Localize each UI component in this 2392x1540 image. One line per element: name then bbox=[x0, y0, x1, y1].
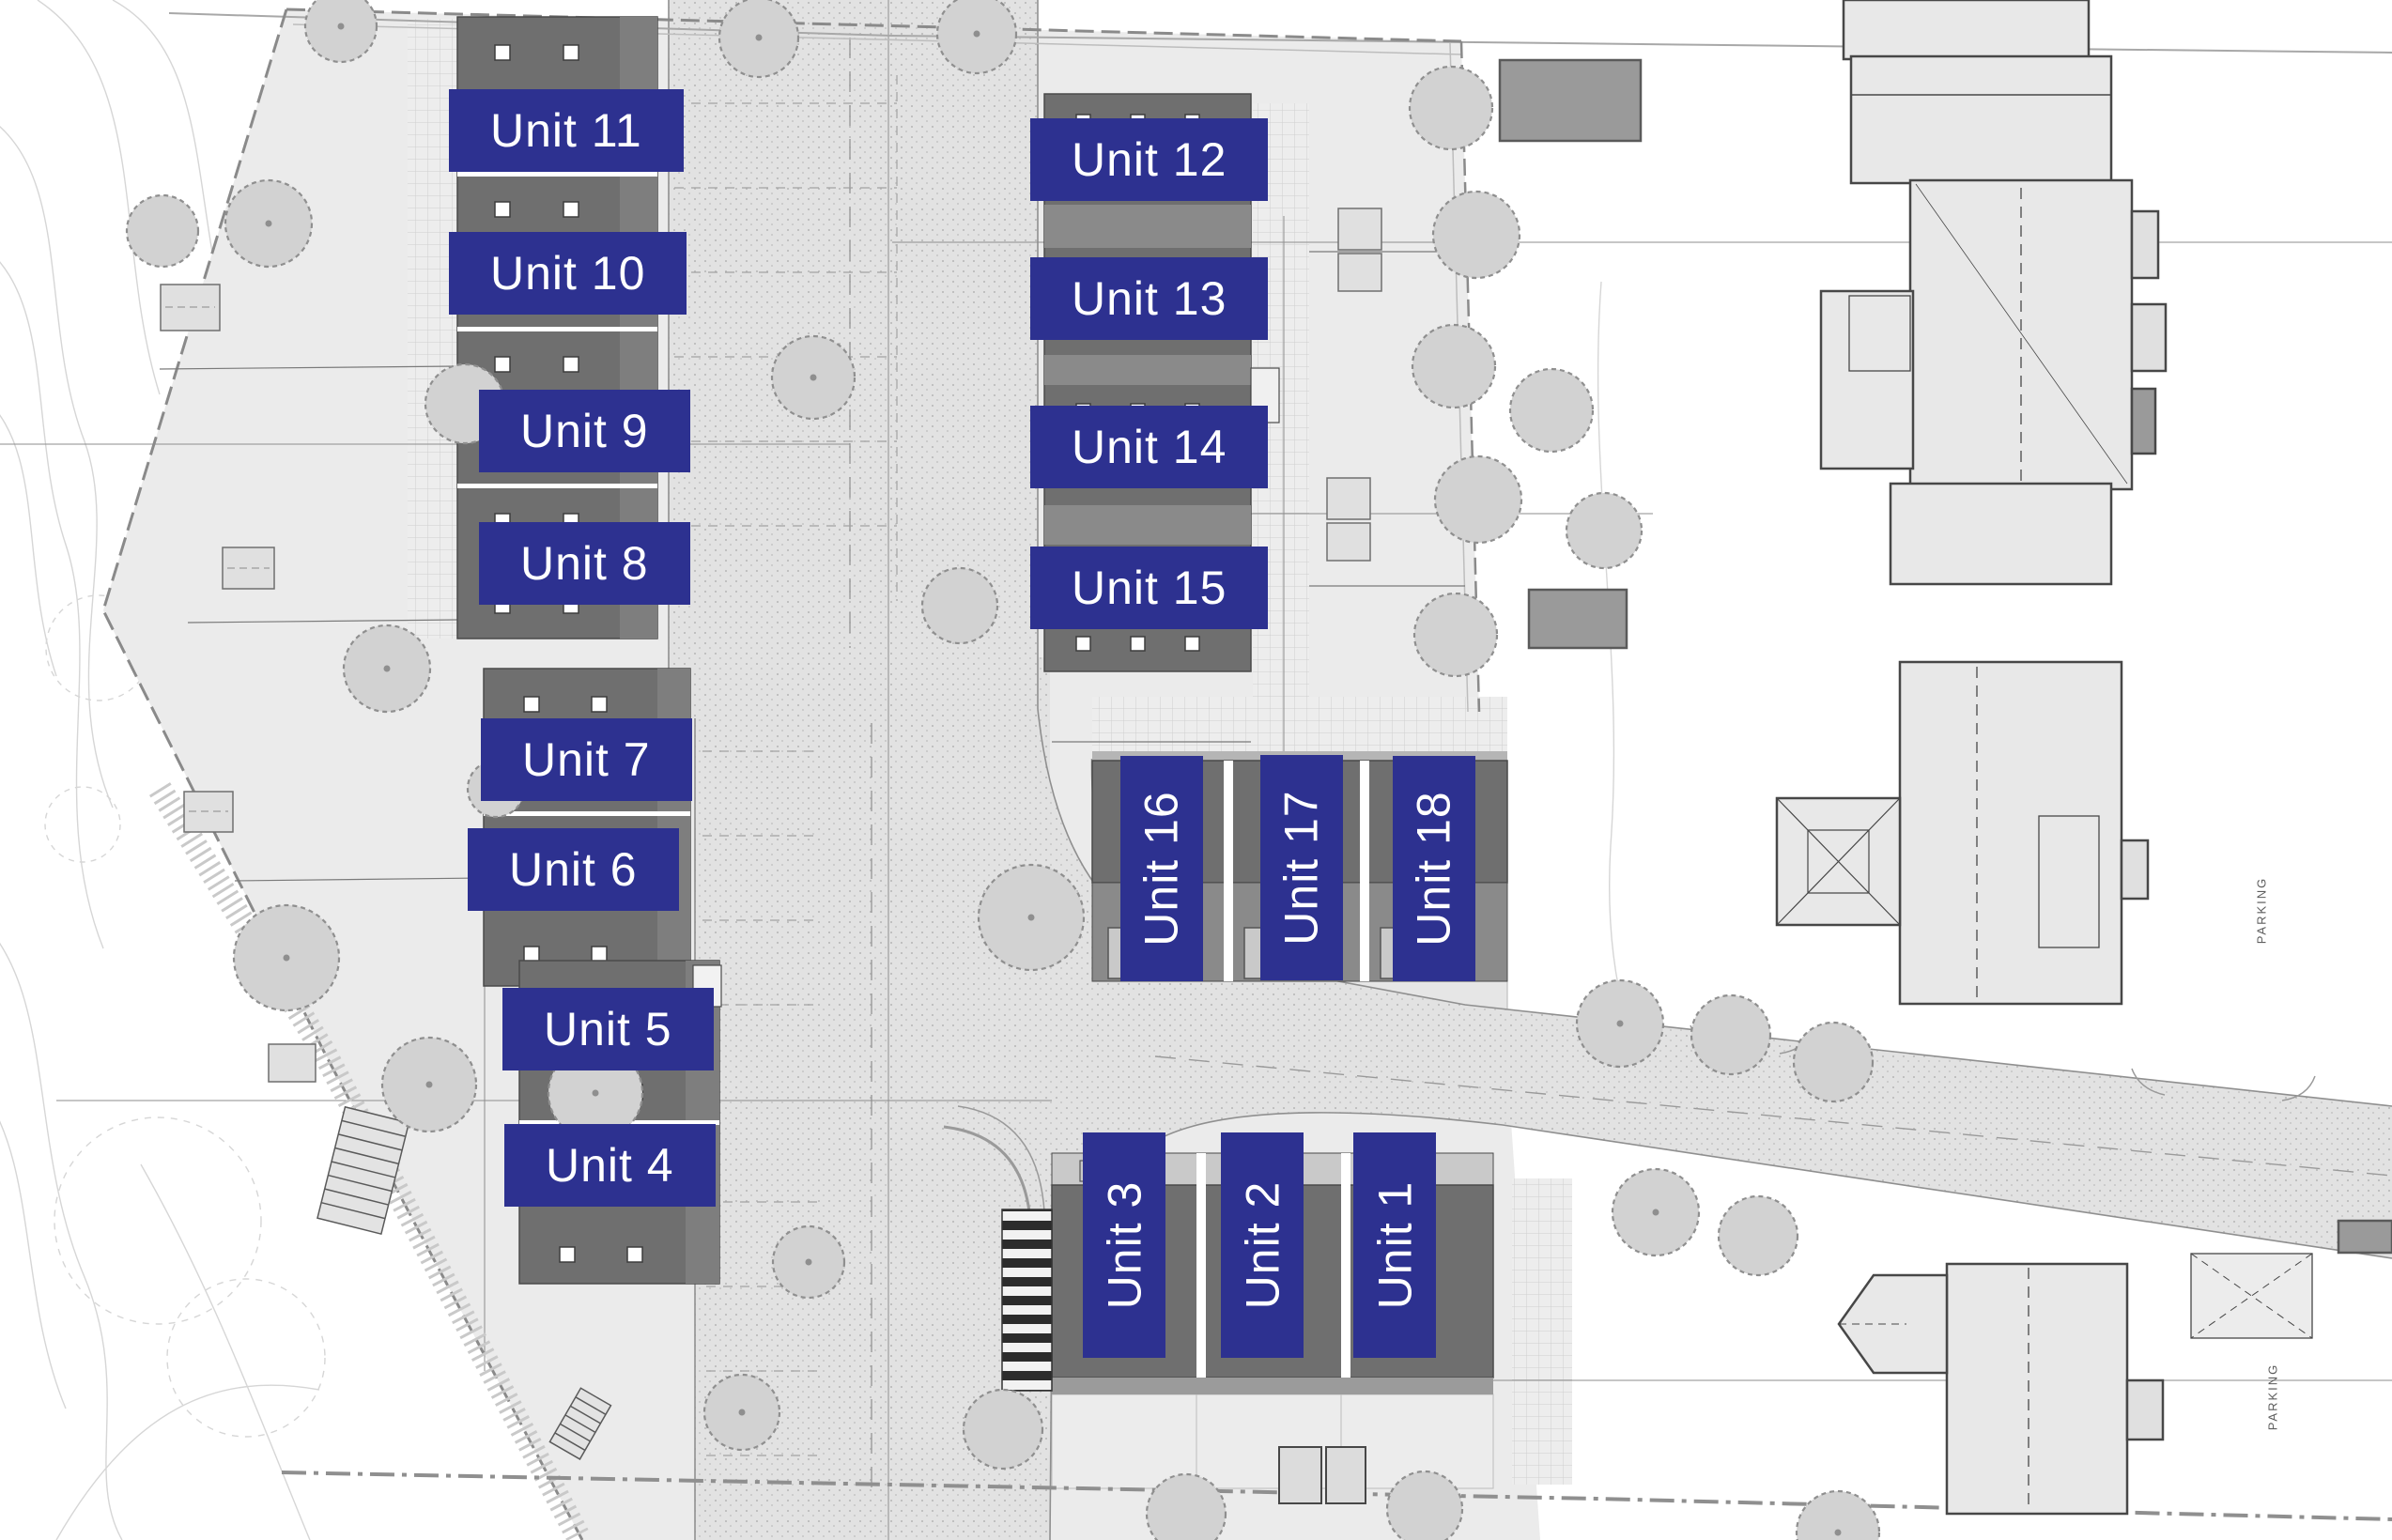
unit-label-12[interactable]: Unit 12 bbox=[1030, 118, 1268, 201]
cycle-bin-store bbox=[1002, 1209, 1052, 1391]
unit-label-text: Unit 16 bbox=[1138, 791, 1185, 946]
unit-label-9[interactable]: Unit 9 bbox=[479, 390, 690, 472]
unit-label-4[interactable]: Unit 4 bbox=[504, 1124, 716, 1207]
unit-label-text: Unit 14 bbox=[1072, 423, 1227, 470]
unit-label-text: Unit 1 bbox=[1371, 1181, 1418, 1310]
unit-label-text: Unit 8 bbox=[520, 540, 649, 587]
unit-label-10[interactable]: Unit 10 bbox=[449, 232, 687, 315]
unit-label-14[interactable]: Unit 14 bbox=[1030, 406, 1268, 488]
unit-label-text: Unit 18 bbox=[1411, 791, 1458, 946]
unit-label-text: Unit 2 bbox=[1239, 1181, 1286, 1310]
unit-label-text: Unit 4 bbox=[546, 1142, 674, 1189]
unit-label-text: Unit 17 bbox=[1278, 790, 1325, 945]
unit-label-text: Unit 7 bbox=[522, 736, 651, 783]
unit-label-13[interactable]: Unit 13 bbox=[1030, 257, 1268, 340]
terrace-units-6-7 bbox=[484, 669, 690, 986]
unit-label-17[interactable]: Unit 17 bbox=[1260, 755, 1343, 980]
unit-label-1[interactable]: Unit 1 bbox=[1353, 1132, 1436, 1358]
unit-label-text: Unit 3 bbox=[1101, 1181, 1148, 1310]
unit-label-text: Unit 11 bbox=[490, 107, 642, 154]
unit-label-text: Unit 9 bbox=[520, 408, 649, 454]
unit-label-15[interactable]: Unit 15 bbox=[1030, 547, 1268, 629]
unit-label-3[interactable]: Unit 3 bbox=[1083, 1132, 1165, 1358]
unit-label-text: Unit 5 bbox=[544, 1006, 672, 1053]
unit-label-text: Unit 12 bbox=[1072, 136, 1227, 183]
unit-label-16[interactable]: Unit 16 bbox=[1120, 756, 1203, 981]
unit-label-2[interactable]: Unit 2 bbox=[1221, 1132, 1304, 1358]
unit-label-5[interactable]: Unit 5 bbox=[502, 988, 714, 1070]
unit-label-7[interactable]: Unit 7 bbox=[481, 718, 692, 801]
parking-annotation: PARKING bbox=[2255, 855, 2269, 967]
unit-label-8[interactable]: Unit 8 bbox=[479, 522, 690, 605]
unit-label-text: Unit 6 bbox=[509, 846, 638, 893]
unit-label-text: Unit 13 bbox=[1072, 275, 1227, 322]
siteplan-canvas: Unit 11 Unit 10 Unit 9 Unit 8 Unit 7 Uni… bbox=[0, 0, 2392, 1540]
unit-label-text: Unit 15 bbox=[1072, 564, 1227, 611]
parking-annotation: PARKING bbox=[2266, 1341, 2280, 1454]
unit-label-11[interactable]: Unit 11 bbox=[449, 89, 684, 172]
unit-label-6[interactable]: Unit 6 bbox=[468, 828, 679, 911]
unit-label-text: Unit 10 bbox=[490, 250, 645, 297]
unit-label-18[interactable]: Unit 18 bbox=[1393, 756, 1475, 981]
